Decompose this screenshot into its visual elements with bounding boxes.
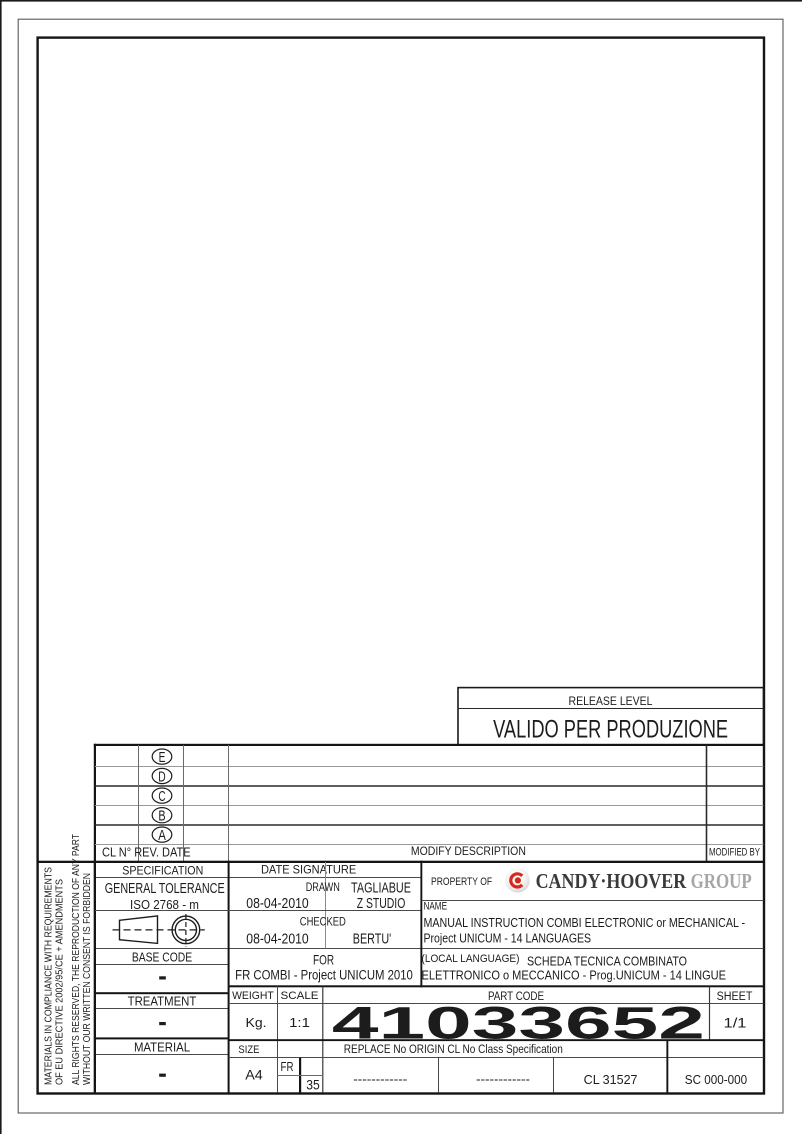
svg-text:SPECIFICATION: SPECIFICATION: [122, 863, 203, 877]
svg-text:SC 000-000: SC 000-000: [685, 1072, 747, 1087]
svg-text:ELETTRONICO o MECCANICO - Prog: ELETTRONICO o MECCANICO - Prog.UNICUM - …: [422, 968, 727, 983]
svg-text:MANUAL INSTRUCTION COMBI ELECT: MANUAL INSTRUCTION COMBI ELECTRONIC or M…: [424, 915, 746, 930]
svg-text:RELEASE LEVEL: RELEASE LEVEL: [569, 694, 653, 708]
svg-text:CHECKED: CHECKED: [300, 915, 346, 929]
svg-text:MODIFY DESCRIPTION: MODIFY DESCRIPTION: [411, 844, 526, 858]
svg-text:VALIDO PER PRODUZIONE: VALIDO PER PRODUZIONE: [493, 716, 728, 744]
svg-text:WEIGHT: WEIGHT: [232, 990, 274, 1002]
svg-text:35: 35: [306, 1076, 320, 1092]
svg-text:PROPERTY OF: PROPERTY OF: [431, 876, 493, 888]
svg-text:Z STUDIO: Z STUDIO: [357, 895, 406, 912]
svg-text:E: E: [159, 750, 166, 766]
svg-text:SCALE: SCALE: [281, 990, 319, 1002]
svg-text:A: A: [158, 828, 166, 844]
svg-text:A4: A4: [245, 1067, 263, 1083]
svg-text:C: C: [158, 789, 165, 805]
svg-text:FR: FR: [281, 1059, 294, 1074]
svg-text:BASE CODE: BASE CODE: [132, 950, 192, 965]
svg-text:MATERIAL: MATERIAL: [134, 1040, 190, 1055]
svg-text:OF EU DIRECTIVE 2002/95/CE + A: OF EU DIRECTIVE 2002/95/CE + AMENDMENTS: [55, 879, 66, 1085]
svg-text:1/1: 1/1: [724, 1014, 747, 1030]
svg-text:WITHOUT OUR WRITTEN CONSENT IS: WITHOUT OUR WRITTEN CONSENT IS FORBIDDEN: [82, 873, 93, 1085]
svg-text:B: B: [158, 809, 165, 825]
svg-text:CL N° REV. DATE: CL N° REV. DATE: [102, 846, 191, 860]
svg-text:MODIFIED BY: MODIFIED BY: [709, 847, 760, 859]
svg-text:CL 31527: CL 31527: [584, 1072, 638, 1087]
svg-text:Project UNICUM - 14 LANGUAGES: Project UNICUM - 14 LANGUAGES: [424, 930, 592, 945]
svg-text:FR COMBI - Project UNICUM 2010: FR COMBI - Project UNICUM 2010: [235, 968, 413, 983]
svg-text:DRAWN: DRAWN: [306, 880, 340, 894]
svg-text:SHEET: SHEET: [717, 991, 753, 1003]
svg-text:08-04-2010: 08-04-2010: [246, 895, 308, 912]
svg-text:------------: ------------: [476, 1072, 530, 1087]
svg-text:------------: ------------: [353, 1072, 407, 1087]
svg-text:D: D: [158, 769, 165, 785]
svg-text:GENERAL TOLERANCE: GENERAL TOLERANCE: [105, 880, 225, 897]
svg-text:FOR: FOR: [313, 953, 334, 968]
svg-text:08-04-2010: 08-04-2010: [246, 931, 308, 948]
svg-text:NAME: NAME: [424, 900, 448, 912]
svg-text:GROUP: GROUP: [691, 869, 752, 893]
svg-text:REPLACE No ORIGIN CL No Class: REPLACE No ORIGIN CL No Class Specificat…: [344, 1042, 563, 1056]
svg-text:MATERIALS IN COMPLIANCE WITH R: MATERIALS IN COMPLIANCE WITH REQUIREMENT…: [44, 867, 55, 1085]
svg-text:BERTU': BERTU': [353, 931, 391, 948]
svg-text:SIZE: SIZE: [238, 1044, 259, 1056]
svg-text:1:1: 1:1: [289, 1015, 310, 1030]
svg-text:TREATMENT: TREATMENT: [128, 994, 197, 1009]
svg-text:ALL RIGHTS RESERVED, THE REPRO: ALL RIGHTS RESERVED, THE REPRODUCTION OF…: [71, 834, 82, 1085]
svg-text:ISO 2768 - m: ISO 2768 - m: [130, 897, 199, 912]
svg-text:TAGLIABUE: TAGLIABUE: [351, 879, 411, 896]
svg-text:DATE SIGNATURE: DATE SIGNATURE: [261, 862, 356, 876]
svg-text:CANDY·HOOVER: CANDY·HOOVER: [536, 869, 687, 893]
svg-text:Kg.: Kg.: [246, 1015, 267, 1030]
svg-text:SCHEDA TECNICA COMBINATO: SCHEDA TECNICA COMBINATO: [527, 954, 687, 969]
svg-text:(LOCAL LANGUAGE): (LOCAL LANGUAGE): [422, 953, 520, 965]
